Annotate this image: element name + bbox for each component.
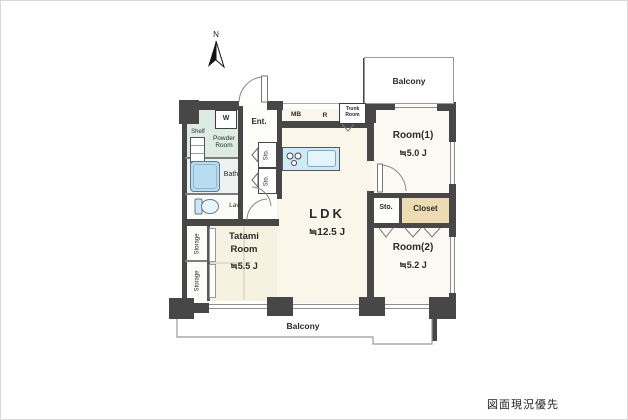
- room1-door-leaf: [378, 164, 383, 192]
- hall-door-arc-2: [247, 199, 267, 220]
- drawing-priority-note: 図面現況優先: [487, 399, 587, 412]
- room2-name: Room(2): [377, 242, 449, 254]
- balcony-top-label: Balcony: [364, 77, 454, 87]
- ent-label: Ent.: [241, 117, 277, 126]
- washer-label: W: [215, 115, 237, 123]
- floorplan-image: N Ent. W Shelf Powder Room Bath Lav. MB …: [0, 0, 628, 420]
- entrance-door-leaf: [262, 76, 268, 102]
- closet-door-marks: [405, 228, 440, 237]
- storage-lower-label: Storage: [195, 270, 202, 291]
- entrance-door-arc: [239, 77, 261, 102]
- sto-hall-upper-label: Sto.: [264, 150, 271, 161]
- north-compass-icon: N: [208, 30, 224, 67]
- room1-size: ≒5.0 J: [377, 148, 449, 158]
- tatami-size: ≒5.5 J: [211, 261, 277, 271]
- room2-size: ≒5.2 J: [377, 260, 449, 270]
- toilet-bowl-icon: [202, 200, 219, 214]
- sto-lower-door-mark: [252, 173, 258, 187]
- storage-upper-label: Storage: [195, 233, 202, 254]
- compass-n-label: N: [213, 30, 219, 39]
- bath-label: Bath: [217, 171, 245, 179]
- powder-room-label-2: Room: [204, 142, 244, 149]
- ldk-name: LDK: [294, 207, 360, 222]
- sto-hall-lower-label: Sto.: [264, 176, 271, 187]
- balcony-bottom-label: Balcony: [263, 322, 343, 332]
- lav-label: Lav.: [223, 202, 247, 209]
- r-label: R: [318, 112, 332, 119]
- tatami-name-2: Room: [211, 245, 277, 256]
- trunk-room-label-2: Room: [339, 113, 366, 119]
- room1-door-arc: [383, 165, 406, 191]
- sto-right-label: Sto.: [372, 204, 400, 212]
- sto-upper-door-mark: [252, 148, 258, 162]
- sto-right-door-mark: [379, 228, 393, 237]
- stove-burners-icon: [287, 153, 301, 166]
- toilet-tank-icon: [195, 199, 202, 214]
- ldk-size: ≒12.5 J: [292, 227, 362, 239]
- closet-label: Closet: [402, 204, 449, 213]
- mb-label: MB: [286, 111, 306, 118]
- room1-name: Room(1): [377, 130, 449, 142]
- trunk-door-mark: [342, 124, 354, 131]
- tatami-name-1: Tatami: [211, 232, 277, 243]
